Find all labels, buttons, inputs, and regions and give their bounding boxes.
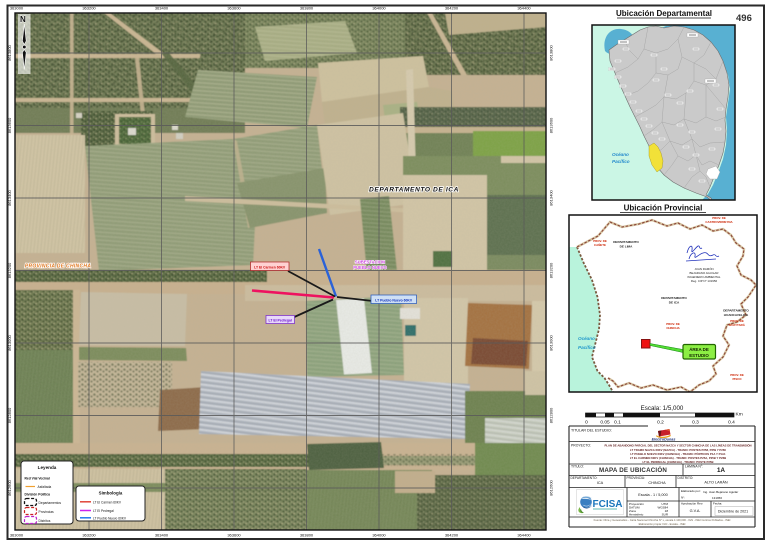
svg-text:Elaboración propia: IGN - Esca: Elaboración propia: IGN - Escala - INEI	[639, 522, 686, 526]
svg-text:363800: 363800	[300, 533, 314, 538]
svg-text:Hemisferio: Hemisferio	[629, 513, 644, 517]
svg-text:Diciembre de 2021: Diciembre de 2021	[718, 510, 748, 514]
svg-text:LÁMINA N°:: LÁMINA N°:	[685, 465, 703, 469]
svg-text:G.V.A.: G.V.A.	[690, 509, 701, 513]
svg-text:División Política: División Política	[25, 493, 51, 497]
svg-text:8612800: 8612800	[549, 407, 554, 423]
svg-text:0.1: 0.1	[614, 420, 621, 426]
svg-text:ALTO LARÁN: ALTO LARÁN	[704, 481, 728, 485]
svg-text:Km: Km	[736, 412, 743, 418]
svg-text:363200: 363200	[82, 6, 96, 11]
svg-text:LT El Pedregal: LT El Pedregal	[269, 319, 292, 323]
svg-text:0: 0	[585, 420, 588, 426]
svg-text:364000: 364000	[372, 6, 386, 11]
svg-text:LT El Carmen 60KV: LT El Carmen 60KV	[254, 265, 286, 269]
svg-text:131956: 131956	[712, 496, 722, 500]
svg-text:Fecha:: Fecha:	[713, 502, 722, 506]
svg-text:496: 496	[736, 13, 752, 24]
svg-text:363200: 363200	[82, 533, 96, 538]
svg-text:8612600: 8612600	[7, 479, 12, 495]
svg-text:CHINCHA: CHINCHA	[666, 326, 680, 330]
svg-text:Ubicación Departamental: Ubicación Departamental	[616, 9, 712, 18]
svg-text:8613000: 8613000	[7, 334, 12, 350]
svg-text:DEPARTAMENTO:: DEPARTAMENTO:	[571, 476, 598, 480]
svg-text:LT Pueblo Nuevo 60KV: LT Pueblo Nuevo 60KV	[375, 298, 413, 302]
svg-text:8613800: 8613800	[549, 44, 554, 60]
svg-text:0.3: 0.3	[692, 420, 699, 426]
svg-text:PROVINCIA DE CHINCHA: PROVINCIA DE CHINCHA	[25, 264, 91, 270]
svg-text:PROYECTO:: PROYECTO:	[571, 444, 591, 448]
svg-text:364000: 364000	[372, 533, 386, 538]
svg-text:Aprobación Rev:: Aprobación Rev:	[681, 502, 703, 506]
svg-text:364400: 364400	[517, 533, 531, 538]
svg-text:8613600: 8613600	[7, 117, 12, 133]
svg-text:Escala - 1 / 5,000: Escala - 1 / 5,000	[638, 493, 668, 497]
svg-text:8613800: 8613800	[7, 44, 12, 60]
svg-text:364400: 364400	[517, 6, 531, 11]
svg-text:LT El Carmen 60KV: LT El Carmen 60KV	[93, 500, 122, 504]
svg-text:8613200: 8613200	[549, 262, 554, 278]
svg-text:DE LIMA: DE LIMA	[620, 245, 633, 249]
svg-text:8613000: 8613000	[549, 334, 554, 350]
svg-text:Simbología: Simbología	[99, 491, 123, 496]
svg-text:PROVINCIA:: PROVINCIA:	[627, 476, 646, 480]
svg-text:Elaborado por:: Elaborado por:	[681, 489, 701, 493]
svg-text:8612600: 8612600	[549, 479, 554, 495]
svg-text:LT EL PEDREGAL (CHINCHA) - TRA: LT EL PEDREGAL (CHINCHA) - TRAMO: POSTE …	[642, 460, 713, 464]
svg-text:364200: 364200	[445, 533, 459, 538]
svg-text:TITULAR DEL ESTUDIO:: TITULAR DEL ESTUDIO:	[571, 429, 612, 433]
svg-text:0.4: 0.4	[728, 420, 735, 426]
svg-text:364200: 364200	[445, 6, 459, 11]
svg-text:N°:: N°:	[681, 496, 685, 500]
svg-text:363000: 363000	[10, 533, 24, 538]
svg-text:CAÑETE: CAÑETE	[594, 242, 606, 247]
svg-text:Escala: 1/5,000: Escala: 1/5,000	[641, 405, 684, 412]
svg-text:HUAYTARÁ: HUAYTARÁ	[729, 322, 746, 327]
svg-text:Fuente: Obra y Geoestudios - C: Fuente: Obra y Geoestudios - Carta Nacio…	[594, 518, 731, 522]
svg-text:LT Pueblo Nuevo 60KV: LT Pueblo Nuevo 60KV	[93, 516, 127, 520]
svg-text:HUANCAVELICA: HUANCAVELICA	[724, 313, 749, 317]
svg-text:ESTUDIO: ESTUDIO	[689, 353, 709, 358]
svg-text:363800: 363800	[300, 6, 314, 11]
svg-text:Océano: Océano	[612, 152, 629, 157]
svg-text:1A: 1A	[717, 467, 725, 474]
svg-text:TITULO:: TITULO:	[571, 465, 584, 469]
svg-text:PUEBLO NUEVO: PUEBLO NUEVO	[353, 265, 387, 270]
svg-text:8613400: 8613400	[549, 189, 554, 205]
svg-text:Provincias: Provincias	[39, 510, 55, 514]
svg-text:363400: 363400	[155, 6, 169, 11]
svg-text:363000: 363000	[10, 6, 24, 11]
svg-text:Reg. CIP N° 131956: Reg. CIP N° 131956	[691, 279, 718, 283]
svg-text:SUBESTACION: SUBESTACION	[355, 260, 385, 265]
svg-text:PLAN DE ABANDONO PARCIAL DEL S: PLAN DE ABANDONO PARCIAL DEL SECTOR NAZC…	[604, 443, 751, 448]
svg-text:MAPA DE UBICACIÓN: MAPA DE UBICACIÓN	[599, 466, 667, 474]
svg-text:0.05: 0.05	[600, 420, 610, 426]
svg-text:Leyenda: Leyenda	[38, 465, 57, 470]
svg-text:ÁREA DE: ÁREA DE	[689, 347, 709, 352]
svg-text:CASTROVIRREYNA: CASTROVIRREYNA	[705, 220, 733, 224]
svg-text:Pacífico: Pacífico	[578, 345, 596, 350]
svg-text:FCISA: FCISA	[593, 499, 623, 510]
svg-text:DEPARTAMENTO DE ICA: DEPARTAMENTO DE ICA	[369, 187, 459, 194]
svg-text:Asfaltada: Asfaltada	[38, 485, 52, 489]
svg-text:0.2: 0.2	[657, 420, 664, 426]
svg-text:DEPARTAMENTO: DEPARTAMENTO	[661, 296, 687, 300]
svg-text:ICA: ICA	[597, 481, 604, 485]
svg-text:ElectroDunas: ElectroDunas	[652, 437, 676, 441]
svg-text:DISTRITO:: DISTRITO:	[678, 476, 694, 480]
svg-text:363600: 363600	[227, 6, 241, 11]
svg-text:Departamentos: Departamentos	[39, 501, 62, 505]
svg-text:Pacífico: Pacífico	[612, 159, 630, 164]
svg-text:PISCO: PISCO	[733, 377, 743, 381]
svg-text:Ing. Juan Bejarano Aguilar: Ing. Juan Bejarano Aguilar	[703, 490, 738, 494]
svg-text:8613400: 8613400	[7, 189, 12, 205]
svg-text:Ubicación Provincial: Ubicación Provincial	[624, 204, 703, 213]
svg-text:DEPARTAMENTO: DEPARTAMENTO	[613, 240, 639, 244]
svg-text:SUR: SUR	[662, 513, 669, 517]
svg-text:Distritos: Distritos	[39, 519, 51, 523]
svg-text:LT El Pedregal: LT El Pedregal	[93, 509, 114, 513]
svg-text:Océano: Océano	[578, 336, 595, 341]
svg-text:8612800: 8612800	[7, 407, 12, 423]
svg-text:8613200: 8613200	[7, 262, 12, 278]
svg-text:8613600: 8613600	[549, 117, 554, 133]
svg-text:N: N	[20, 15, 26, 24]
svg-text:CHINCHA: CHINCHA	[648, 481, 666, 485]
svg-text:Red Vial Vecinal: Red Vial Vecinal	[25, 477, 50, 481]
svg-text:DEPARTAMENTO: DEPARTAMENTO	[723, 309, 749, 313]
svg-text:363400: 363400	[155, 533, 169, 538]
svg-text:DE ICA: DE ICA	[669, 301, 680, 305]
svg-text:363600: 363600	[227, 533, 241, 538]
